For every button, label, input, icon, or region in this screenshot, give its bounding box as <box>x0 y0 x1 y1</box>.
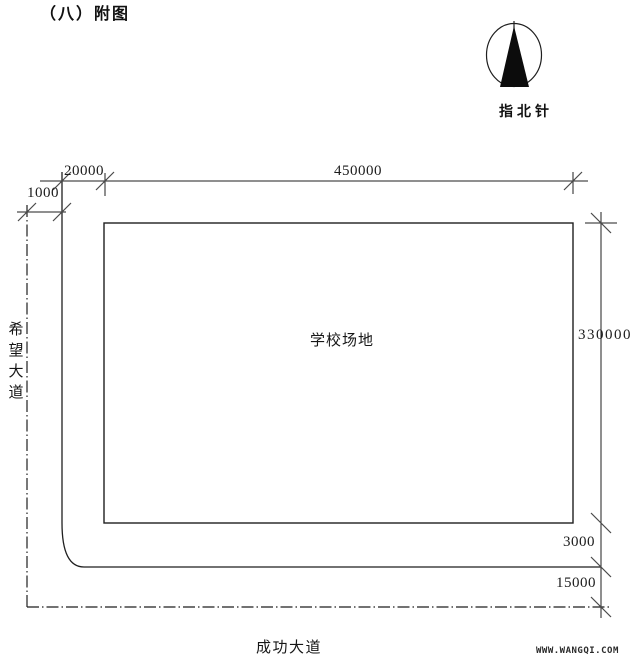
dimension-field-width: 450000 <box>334 163 382 180</box>
bottom-road-name: 成功大道 <box>256 639 322 656</box>
school-field-label: 学校场地 <box>310 332 374 349</box>
dimension-road-offset: 15000 <box>556 575 596 592</box>
compass-needle <box>500 26 529 87</box>
compass-label: 指北针 <box>499 105 553 120</box>
dimension-field-height: 330000 <box>578 327 632 344</box>
dimension-setback-bottom: 3000 <box>563 534 595 551</box>
watermark-text: WWW.WANGQI.COM <box>536 647 619 657</box>
north-arrow-icon <box>487 21 542 87</box>
site-boundary <box>62 172 601 567</box>
page-title: （八）附图 <box>40 5 130 23</box>
dimension-setback-left: 20000 <box>64 163 104 180</box>
left-road-name: 希望大道 <box>7 321 24 405</box>
dimension-road-half-width: 1000 <box>27 185 59 202</box>
school-field-outline <box>104 223 573 523</box>
site-plan-drawing: （八）附图 20000 450000 1000 330000 3000 1500… <box>0 0 638 664</box>
